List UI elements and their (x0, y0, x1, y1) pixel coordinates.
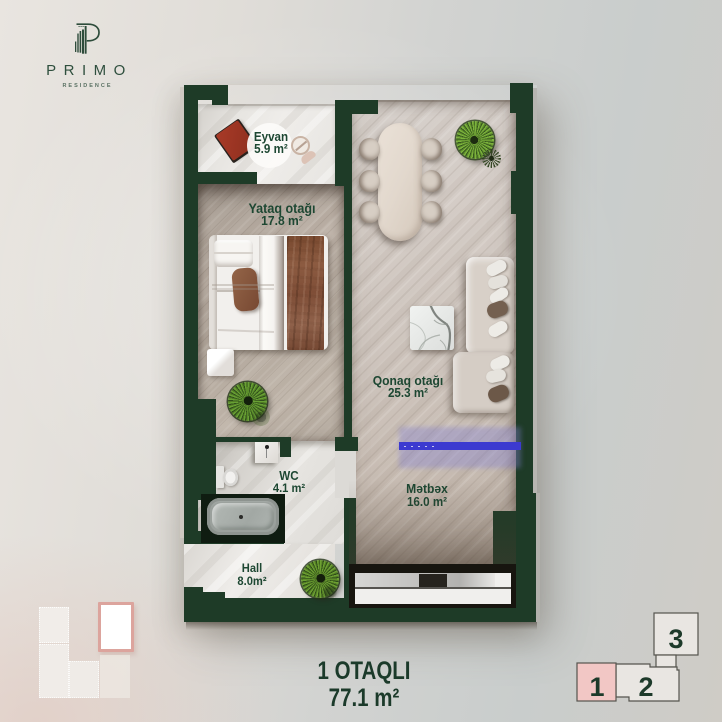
svg-text:1: 1 (589, 672, 604, 702)
svg-text:3: 3 (668, 624, 683, 654)
svg-text:2: 2 (638, 672, 653, 702)
